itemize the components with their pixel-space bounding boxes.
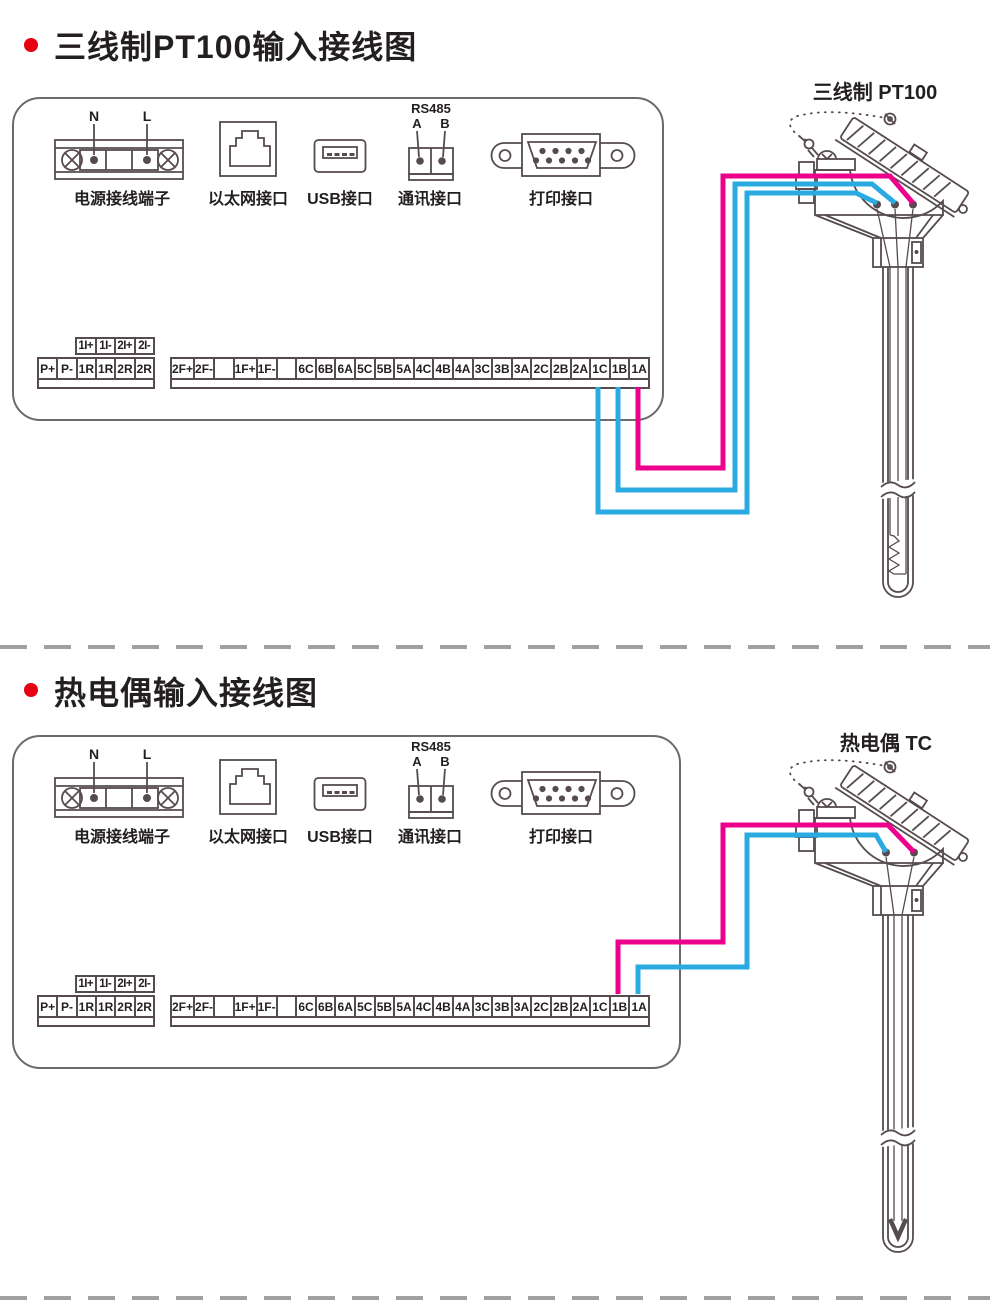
rs485-b-label: B — [440, 116, 449, 131]
terminal-cell: 1I- — [95, 339, 115, 353]
thermocouple-drawing — [700, 733, 980, 1263]
terminal-cell: 2R — [134, 359, 153, 378]
terminal-cell: 3B — [491, 359, 511, 378]
main-terminal-rail — [170, 378, 650, 389]
terminal-cell: 1R — [95, 359, 114, 378]
terminal-cell: 6A — [334, 997, 354, 1016]
terminal-cell: 1R — [76, 359, 95, 378]
terminal-cell: 5C — [354, 359, 374, 378]
terminal-cell: 1R — [95, 997, 114, 1016]
rs485-label: RS485 — [411, 739, 451, 754]
terminal-cell: 5C — [354, 997, 374, 1016]
terminal-cell: 2F- — [193, 359, 213, 378]
terminal-cell: P- — [56, 997, 75, 1016]
terminal-cell: 3A — [511, 997, 531, 1016]
main-terminal-rail — [170, 1016, 650, 1027]
terminal-cell: 2C — [530, 359, 550, 378]
pt100-sensor — [700, 85, 980, 615]
terminal-cell: 6B — [315, 997, 335, 1016]
terminal-cell: 1B — [609, 359, 629, 378]
terminal-cell: P+ — [39, 359, 56, 378]
terminal-cell: 1I+ — [77, 339, 95, 353]
rs485-comm-port-icon: RS485 A B — [400, 738, 464, 822]
section2-bullet — [24, 683, 38, 697]
terminal-cell: 2R — [114, 359, 133, 378]
terminal-cell: 2F+ — [172, 359, 193, 378]
terminal-cell: 6C — [295, 997, 315, 1016]
terminal-cell: 1F- — [256, 997, 276, 1016]
ethernet-port-icon — [218, 120, 282, 178]
terminal-cell: 3A — [511, 359, 531, 378]
terminal-cell: 2R — [114, 997, 133, 1016]
comm-caption: 通讯接口 — [365, 185, 495, 209]
wiring-diagram-page: 三线制PT100输入接线图 N L 电源接线端子 以太网接口 — [0, 0, 990, 1311]
terminal-cell: 2B — [550, 997, 570, 1016]
comm-caption: 通讯接口 — [365, 823, 495, 847]
terminal-cell: P- — [56, 359, 75, 378]
terminal-cell: 1F+ — [233, 359, 256, 378]
terminal-cell: 3C — [472, 359, 492, 378]
printer-caption: 打印接口 — [496, 823, 626, 847]
terminal-cell: 4B — [432, 359, 452, 378]
terminal-cell: 4A — [452, 359, 472, 378]
terminal-cell: 1C — [589, 997, 609, 1016]
terminal-cell: 2A — [570, 359, 590, 378]
left-terminal-strip: P+P-1R1R2R2R — [37, 357, 155, 380]
terminal-cell: 2I+ — [114, 977, 134, 991]
aux-terminal-strip: 1I+1I-2I+2I- — [75, 337, 155, 355]
terminal-cell: 2F+ — [172, 997, 193, 1016]
printer-port-icon — [488, 130, 638, 180]
terminal-cell: 5B — [374, 359, 394, 378]
section2-title: 热电偶输入接线图 — [54, 668, 318, 714]
rs485-a-label: A — [412, 116, 422, 131]
terminal-cell: 4C — [413, 359, 433, 378]
power-l-label: L — [143, 746, 152, 762]
left-terminal-strip: P+P-1R1R2R2R — [37, 995, 155, 1018]
terminal-cell: 1A — [628, 997, 648, 1016]
terminal-cell — [213, 997, 233, 1016]
terminal-cell: 3C — [472, 997, 492, 1016]
terminal-cell: 3B — [491, 997, 511, 1016]
rs485-comm-port-icon: RS485 A B — [400, 100, 464, 184]
terminal-cell: 2I- — [134, 977, 154, 991]
usb-port-icon — [313, 138, 367, 174]
ethernet-port-icon — [218, 758, 282, 816]
terminal-cell: 1F- — [256, 359, 276, 378]
terminal-cell: P+ — [39, 997, 56, 1016]
terminal-cell — [276, 997, 296, 1016]
left-terminal-rail — [37, 378, 155, 389]
terminal-cell: 6A — [334, 359, 354, 378]
rs485-b-label: B — [440, 754, 449, 769]
terminal-cell: 1B — [609, 997, 629, 1016]
terminal-cell: 5A — [393, 359, 413, 378]
printer-caption: 打印接口 — [496, 185, 626, 209]
terminal-cell: 1C — [589, 359, 609, 378]
left-terminal-rail — [37, 1016, 155, 1027]
pt100-probe-drawing — [700, 85, 980, 615]
device-rear-panel-1: N L 电源接线端子 以太网接口 USB接口 R — [12, 97, 664, 421]
terminal-cell: 2F- — [193, 997, 213, 1016]
power-terminal-icon: N L — [48, 106, 190, 186]
terminal-cell: 2I- — [134, 339, 154, 353]
terminal-cell: 1I+ — [77, 977, 95, 991]
terminal-cell: 1F+ — [233, 997, 256, 1016]
terminal-cell: 6C — [295, 359, 315, 378]
terminal-cell: 4A — [452, 997, 472, 1016]
usb-port-icon — [313, 776, 367, 812]
main-terminal-strip: 2F+2F-1F+1F-6C6B6A5C5B5A4C4B4A3C3B3A2C2B… — [170, 357, 650, 380]
terminal-cell: 2B — [550, 359, 570, 378]
terminal-cell: 6B — [315, 359, 335, 378]
terminal-cell: 2C — [530, 997, 550, 1016]
terminal-cell — [213, 359, 233, 378]
terminal-cell: 2A — [570, 997, 590, 1016]
terminal-cell: 1R — [76, 997, 95, 1016]
terminal-cell: 5A — [393, 997, 413, 1016]
section1-title: 三线制PT100输入接线图 — [54, 22, 417, 68]
power-caption: 电源接线端子 — [57, 185, 187, 209]
terminal-cell: 1I- — [95, 977, 115, 991]
rs485-label: RS485 — [411, 101, 451, 116]
terminal-cell: 5B — [374, 997, 394, 1016]
power-caption: 电源接线端子 — [57, 823, 187, 847]
power-n-label: N — [89, 108, 99, 124]
power-terminal-icon: N L — [48, 744, 190, 824]
power-n-label: N — [89, 746, 99, 762]
main-terminal-strip: 2F+2F-1F+1F-6C6B6A5C5B5A4C4B4A3C3B3A2C2B… — [170, 995, 650, 1018]
terminal-cell — [276, 359, 296, 378]
power-l-label: L — [143, 108, 152, 124]
terminal-cell: 2I+ — [114, 339, 134, 353]
terminal-cell: 1A — [628, 359, 648, 378]
printer-port-icon — [488, 768, 638, 818]
aux-terminal-strip: 1I+1I-2I+2I- — [75, 975, 155, 993]
section1-bullet — [24, 38, 38, 52]
terminal-cell: 2R — [134, 997, 153, 1016]
rs485-a-label: A — [412, 754, 422, 769]
terminal-cell: 4B — [432, 997, 452, 1016]
device-rear-panel-2: N L 电源接线端子 以太网接口 USB接口 R — [12, 735, 681, 1069]
terminal-cell: 4C — [413, 997, 433, 1016]
tc-sensor — [700, 733, 980, 1263]
